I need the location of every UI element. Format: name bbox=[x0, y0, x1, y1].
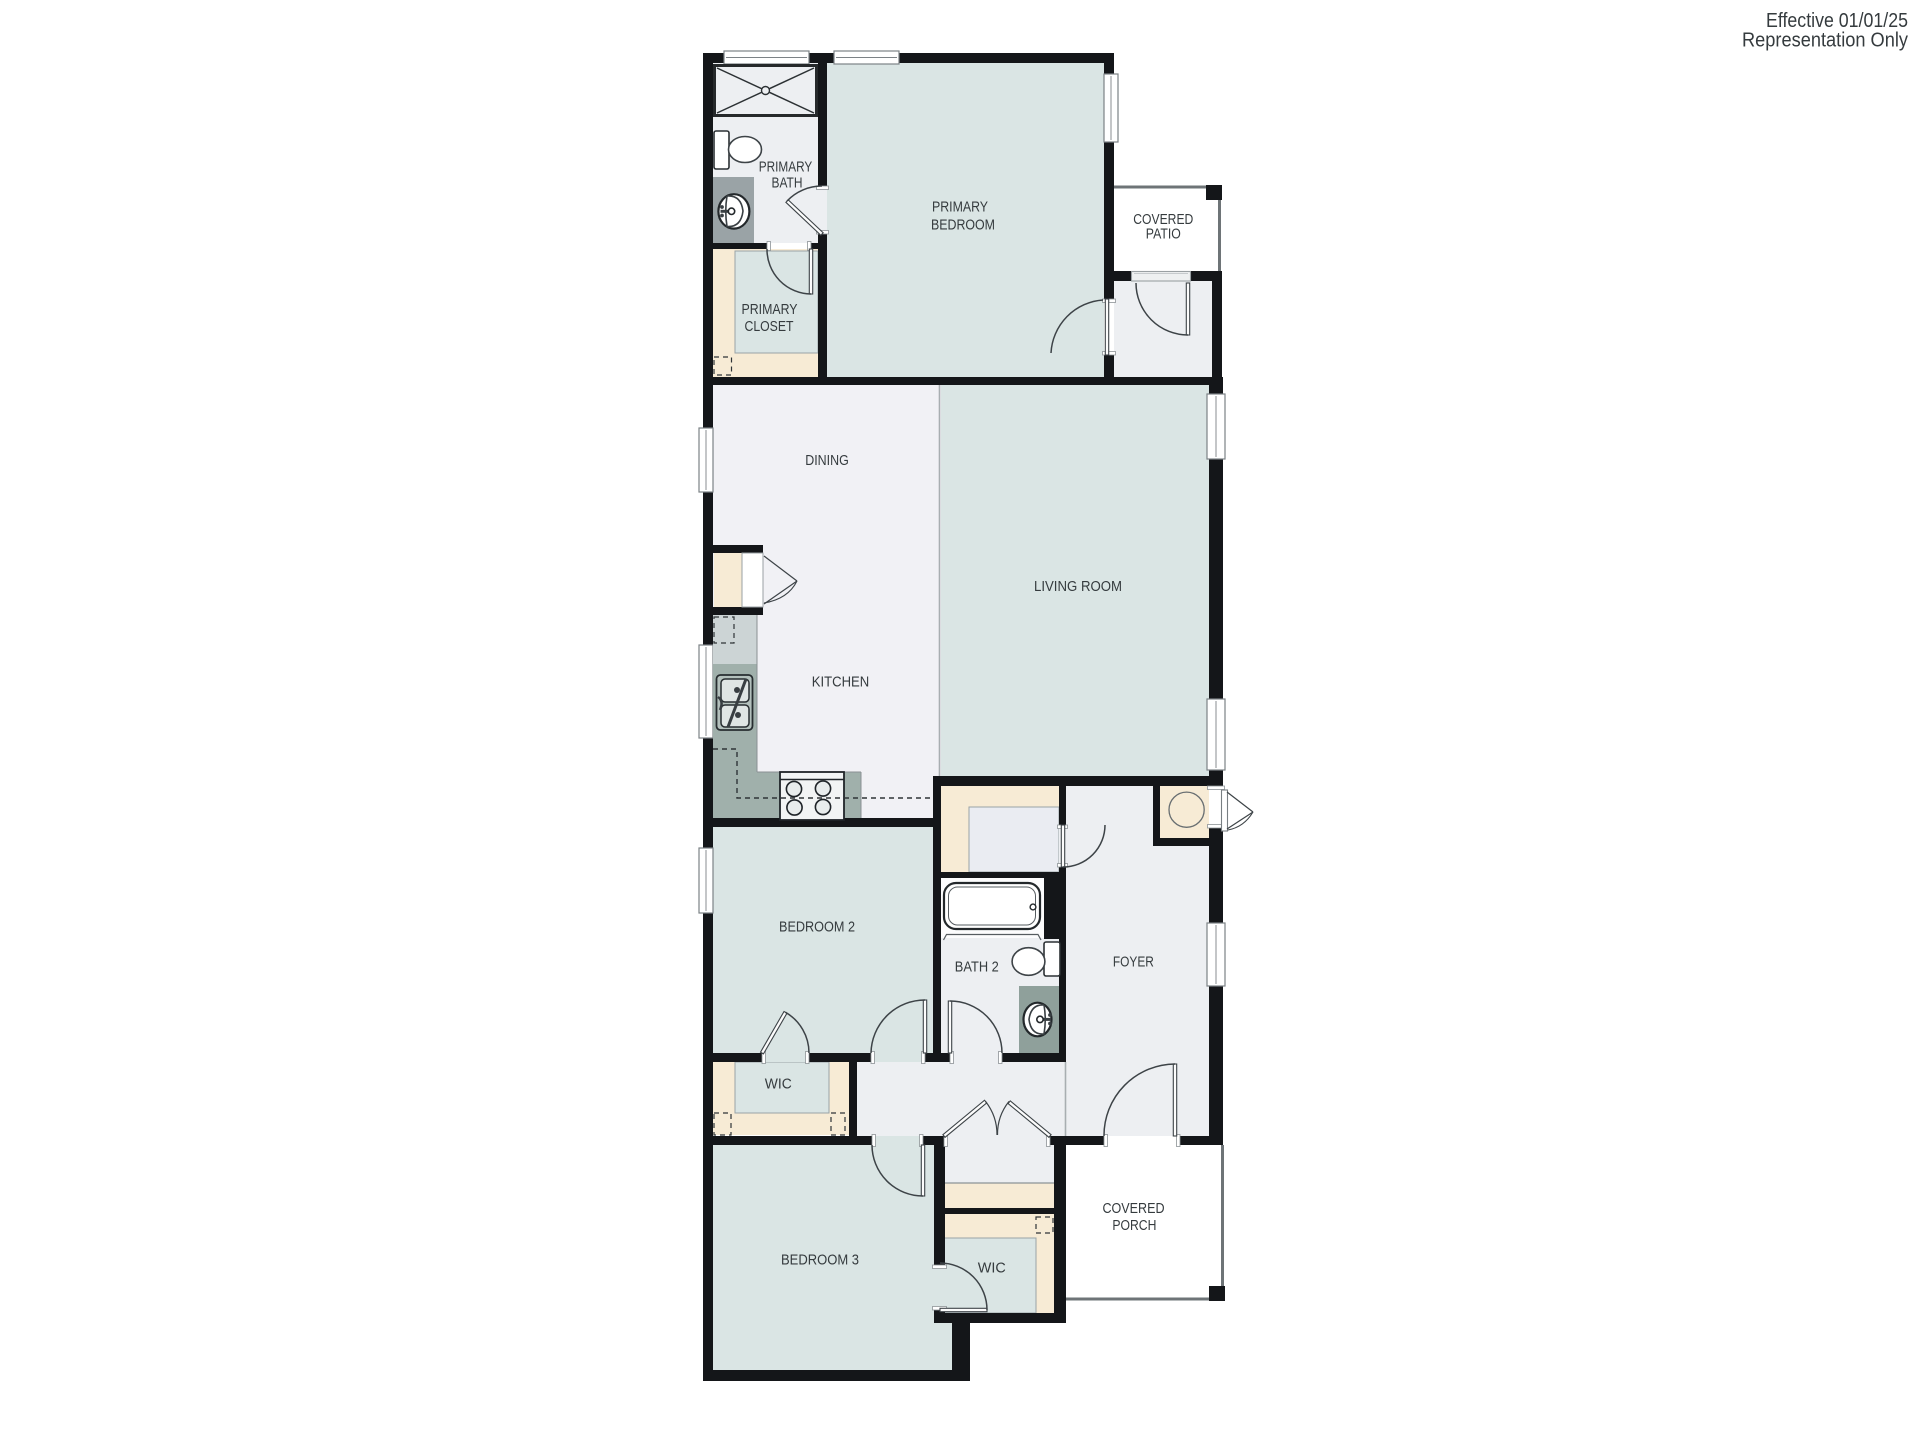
svg-text:PRIMARY: PRIMARY bbox=[759, 159, 813, 176]
svg-text:PATIO: PATIO bbox=[1146, 225, 1181, 242]
svg-text:WIC: WIC bbox=[978, 1260, 1006, 1277]
svg-text:BEDROOM 3: BEDROOM 3 bbox=[781, 1252, 859, 1269]
svg-text:PORCH: PORCH bbox=[1112, 1217, 1156, 1234]
svg-text:BEDROOM: BEDROOM bbox=[931, 217, 995, 234]
svg-text:Representation Only: Representation Only bbox=[1742, 29, 1909, 52]
svg-text:WIC: WIC bbox=[765, 1075, 792, 1092]
svg-text:PRIMARY: PRIMARY bbox=[742, 301, 798, 318]
svg-text:BATH 2: BATH 2 bbox=[955, 959, 999, 976]
svg-text:KITCHEN: KITCHEN bbox=[812, 674, 870, 691]
svg-text:PRIMARY: PRIMARY bbox=[932, 199, 988, 216]
svg-text:BEDROOM 2: BEDROOM 2 bbox=[779, 919, 855, 936]
svg-text:CLOSET: CLOSET bbox=[745, 318, 794, 335]
svg-text:DINING: DINING bbox=[805, 452, 849, 469]
svg-text:LIVING ROOM: LIVING ROOM bbox=[1034, 578, 1122, 595]
svg-text:BATH: BATH bbox=[772, 175, 803, 192]
svg-text:COVERED: COVERED bbox=[1103, 1200, 1165, 1217]
svg-text:FOYER: FOYER bbox=[1113, 954, 1154, 971]
